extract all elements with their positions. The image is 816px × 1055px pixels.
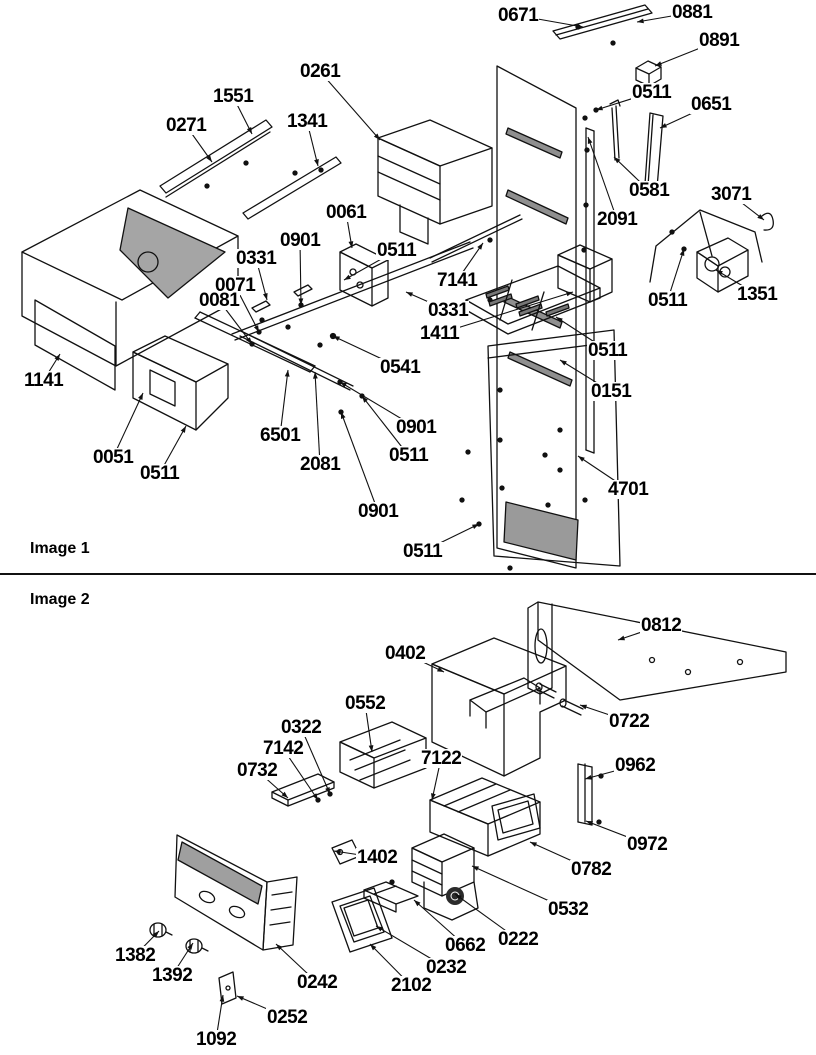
leader-arrowhead <box>325 787 330 794</box>
part-number-6501: 6501 <box>259 426 301 445</box>
leader-arrowhead <box>246 337 252 344</box>
leader-arrowhead <box>313 372 318 379</box>
figure2-caption: Image 2 <box>30 592 90 608</box>
leader-arrowhead <box>566 292 573 297</box>
part-number-0962: 0962 <box>614 756 656 775</box>
leader-arrowhead <box>138 393 143 400</box>
leader-arrowhead <box>578 456 585 462</box>
part-number-0901: 0901 <box>279 231 321 250</box>
part-number-7122: 7122 <box>420 749 462 768</box>
part-number-1551: 1551 <box>212 87 254 106</box>
leader-arrowhead <box>187 943 193 950</box>
leader-arrowhead <box>263 293 268 300</box>
leader-arrowhead <box>55 354 61 361</box>
part-number-1382: 1382 <box>114 946 156 965</box>
leader-arrowhead <box>560 360 567 366</box>
leader-arrowhead <box>530 842 537 847</box>
leader-arrowhead <box>349 241 354 248</box>
part-number-1141: 1141 <box>23 371 64 390</box>
part-number-0901: 0901 <box>395 418 437 437</box>
part-number-0511: 0511 <box>647 291 688 310</box>
part-number-2102: 2102 <box>390 976 432 995</box>
leader-arrowhead <box>596 106 603 111</box>
leader-arrowhead <box>588 137 593 144</box>
part-number-0901: 0901 <box>357 502 399 521</box>
leader-arrowhead <box>376 926 383 931</box>
part-number-0252: 0252 <box>266 1008 308 1027</box>
part-number-7142: 7142 <box>262 739 304 758</box>
part-number-1341: 1341 <box>286 112 328 131</box>
part-number-2091: 2091 <box>596 210 638 229</box>
part-number-0511: 0511 <box>388 446 429 465</box>
leader-arrowhead <box>206 155 212 162</box>
leader-arrowhead <box>181 426 186 433</box>
leader-arrowhead <box>334 850 341 855</box>
part-number-0061: 0061 <box>325 203 367 222</box>
part-number-0331: 0331 <box>427 301 469 320</box>
leader-arrowhead <box>247 127 252 134</box>
leader-arrowhead <box>455 894 462 900</box>
leader-arrowhead <box>341 412 346 419</box>
part-number-0671: 0671 <box>497 6 539 25</box>
part-number-0081: 0081 <box>198 291 240 310</box>
leader-arrowhead <box>586 821 593 826</box>
leader-arrowhead <box>340 382 347 387</box>
part-number-0581: 0581 <box>628 181 670 200</box>
parts-diagram-page: Image 1 Image 2 067108810891026115510271… <box>0 0 816 1055</box>
leader-arrowhead <box>344 275 351 280</box>
leader-arrowhead <box>477 243 483 250</box>
part-number-1392: 1392 <box>151 966 193 985</box>
leader-arrowhead <box>680 249 685 256</box>
part-number-3071: 3071 <box>710 185 752 204</box>
leader-lines-layer <box>0 0 816 1055</box>
part-number-0511: 0511 <box>376 241 417 260</box>
part-number-1402: 1402 <box>356 848 398 867</box>
part-number-0662: 0662 <box>444 936 486 955</box>
part-number-0532: 0532 <box>547 900 589 919</box>
part-number-0511: 0511 <box>587 341 628 360</box>
part-number-0232: 0232 <box>425 958 467 977</box>
leader-arrowhead <box>237 996 244 1001</box>
part-number-0511: 0511 <box>402 542 443 561</box>
part-number-0891: 0891 <box>698 31 740 50</box>
leader-arrowhead <box>472 866 479 871</box>
leader-arrowhead <box>254 325 259 332</box>
leader-arrowhead <box>406 292 413 297</box>
part-number-0051: 0051 <box>92 448 134 467</box>
leader-arrowhead <box>556 317 563 323</box>
leader-arrowhead <box>220 995 225 1002</box>
leader-arrowhead <box>285 370 290 377</box>
part-number-0242: 0242 <box>296 973 338 992</box>
part-number-0972: 0972 <box>626 835 668 854</box>
leader-arrowhead <box>716 270 723 275</box>
part-number-0322: 0322 <box>280 718 322 737</box>
part-number-0541: 0541 <box>379 358 421 377</box>
leader-arrowhead <box>437 667 444 672</box>
figure1-caption: Image 1 <box>30 541 90 557</box>
leader-line <box>588 137 617 220</box>
leader-arrowhead <box>299 298 304 305</box>
part-number-1351: 1351 <box>736 285 778 304</box>
part-number-0782: 0782 <box>570 860 612 879</box>
leader-arrowhead <box>585 775 592 780</box>
part-number-0222: 0222 <box>497 930 539 949</box>
leader-arrowhead <box>312 793 318 800</box>
part-number-0651: 0651 <box>690 95 732 114</box>
leader-arrowhead <box>655 61 662 66</box>
leader-arrowhead <box>472 524 479 529</box>
leader-arrowhead <box>660 123 667 128</box>
leader-arrowhead <box>576 24 583 29</box>
part-number-0511: 0511 <box>139 464 180 483</box>
part-number-4701: 4701 <box>607 480 649 499</box>
leader-arrowhead <box>580 705 587 710</box>
part-number-0881: 0881 <box>671 3 713 22</box>
leader-line <box>315 372 320 465</box>
part-number-7141: 7141 <box>436 271 478 290</box>
part-number-1411: 1411 <box>419 324 460 343</box>
part-number-0552: 0552 <box>344 694 386 713</box>
part-number-0271: 0271 <box>165 116 207 135</box>
part-number-0812: 0812 <box>640 616 682 635</box>
part-number-0261: 0261 <box>299 62 341 81</box>
leader-line <box>341 412 378 512</box>
part-number-1092: 1092 <box>195 1030 237 1049</box>
part-number-0511: 0511 <box>631 83 672 102</box>
leader-arrowhead <box>314 159 319 166</box>
leader-arrowhead <box>637 19 644 24</box>
leader-arrowhead <box>369 745 374 752</box>
part-number-0151: 0151 <box>590 382 632 401</box>
part-number-2081: 2081 <box>299 455 341 474</box>
leader-arrowhead <box>618 636 625 641</box>
part-number-0402: 0402 <box>384 644 426 663</box>
part-number-0722: 0722 <box>608 712 650 731</box>
part-number-0331: 0331 <box>235 249 277 268</box>
leader-arrowhead <box>333 336 340 341</box>
part-number-0732: 0732 <box>236 761 278 780</box>
